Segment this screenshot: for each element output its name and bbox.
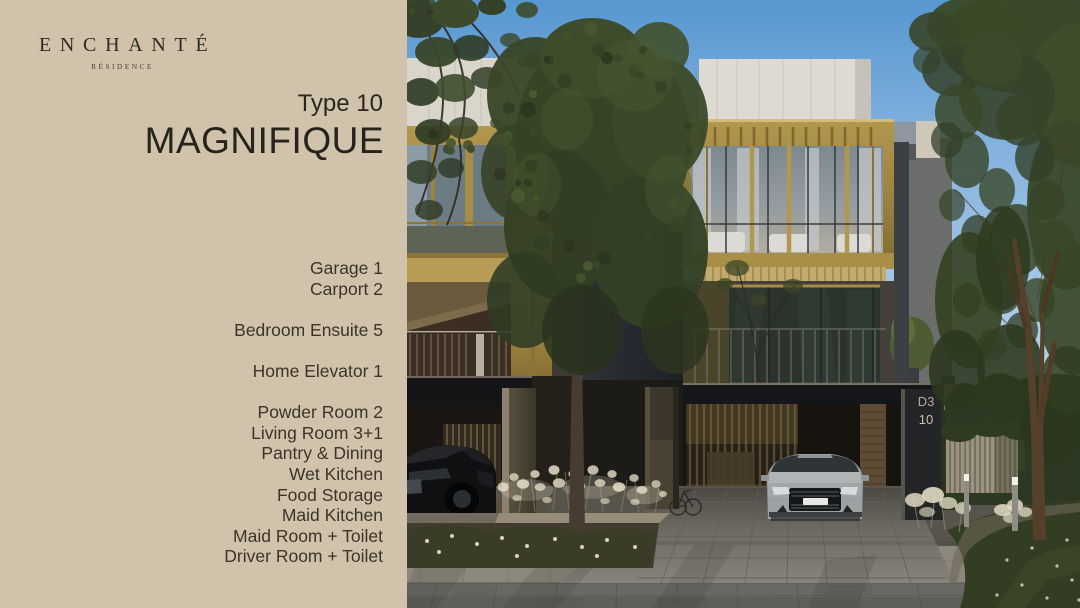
svg-text:10: 10 (919, 412, 933, 427)
svg-text:D3: D3 (918, 394, 935, 409)
